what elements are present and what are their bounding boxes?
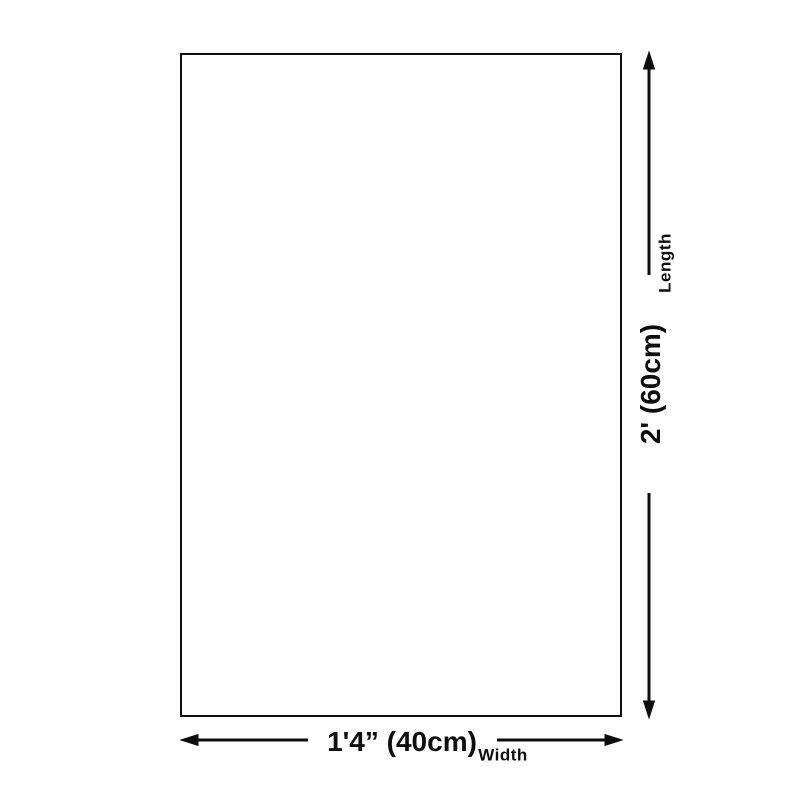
arrow-right-icon — [605, 735, 622, 746]
length-value: 2' (60cm) — [637, 324, 665, 444]
size-diagram: 2' (60cm) Length 1'4” (40cm) Width — [0, 0, 800, 800]
arrow-left-icon — [181, 735, 198, 746]
dimension-arrows — [0, 0, 800, 800]
arrow-down-icon — [644, 701, 655, 718]
arrow-up-icon — [644, 52, 655, 69]
length-caption: Length — [657, 233, 674, 293]
width-caption: Width — [478, 747, 528, 764]
width-value: 1'4” (40cm) — [327, 728, 477, 756]
